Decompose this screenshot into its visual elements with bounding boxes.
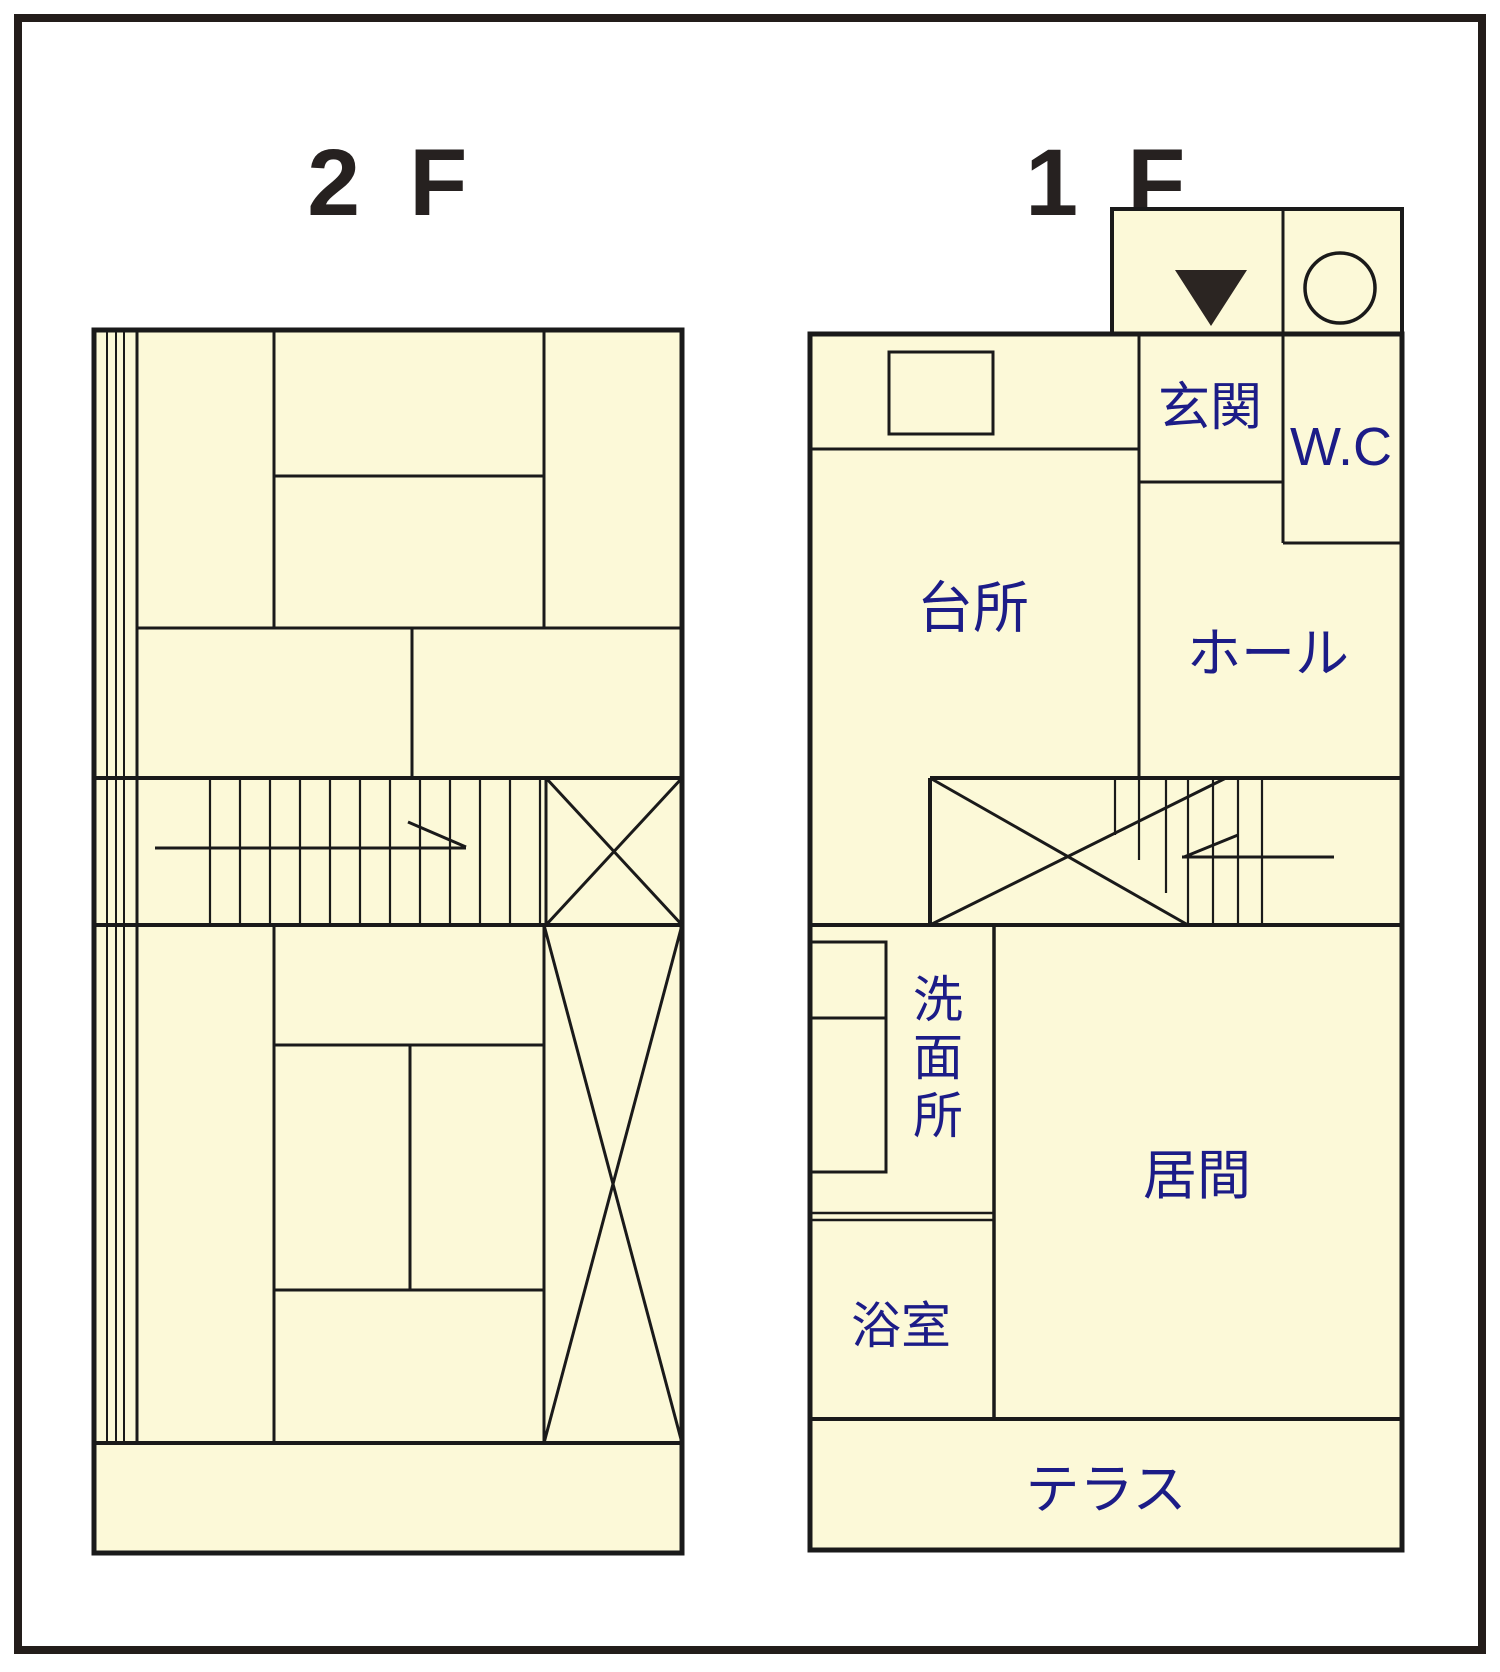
washroom-label-char: 面 — [913, 1030, 963, 1086]
washroom-label-char: 所 — [913, 1088, 963, 1144]
floor1-plan: 玄関 W.C 台所 ホール 洗 面 所 居間 浴室 テラス — [810, 209, 1402, 1550]
washroom-label-char: 洗 — [913, 972, 963, 1028]
kitchen-label: 台所 — [917, 577, 1029, 640]
wc-label: W.C — [1290, 417, 1392, 477]
washroom-label: 洗 面 所 — [913, 972, 963, 1144]
living-label: 居間 — [1143, 1146, 1251, 1206]
entrance-porch — [1112, 209, 1402, 334]
floor2-title: 2 F — [307, 130, 478, 236]
terrace-label: テラス — [1026, 1460, 1187, 1520]
hall-label: ホール — [1187, 624, 1349, 684]
floor2-outline — [94, 330, 682, 1553]
floor2-plan — [94, 330, 682, 1553]
genkan-label: 玄関 — [1158, 379, 1262, 437]
bath-label: 浴室 — [851, 1298, 951, 1354]
floorplan-canvas: 2 F 1 F — [0, 0, 1500, 1672]
floor1-outline — [810, 334, 1402, 1550]
